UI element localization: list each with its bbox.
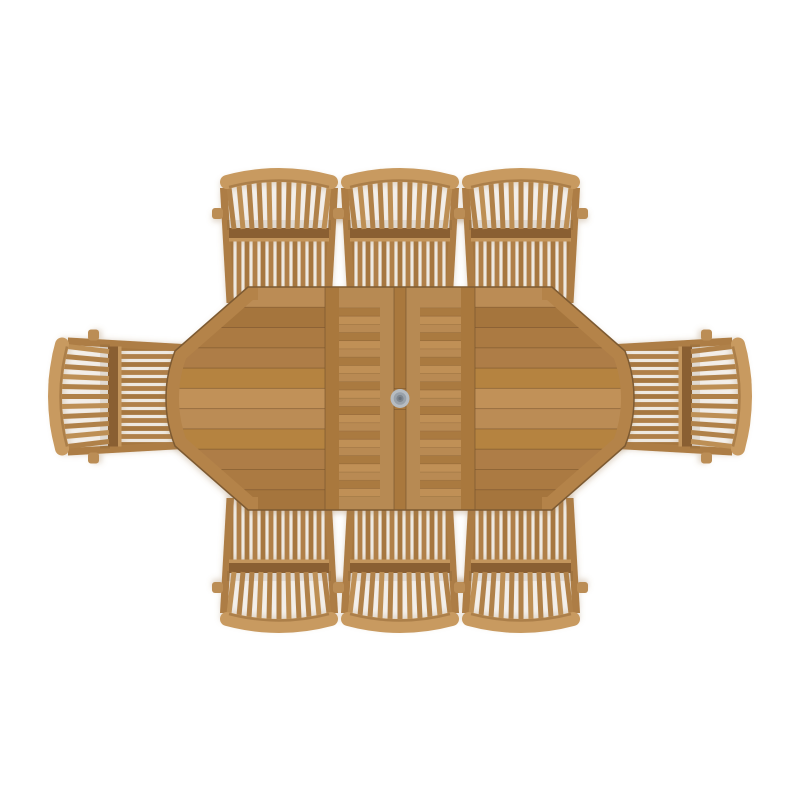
- left-arm-stub: [454, 208, 465, 219]
- left-arm-stub: [333, 208, 344, 219]
- chair-top-right: [454, 175, 588, 303]
- right-arm-stub: [454, 582, 465, 593]
- left-arm-stub: [577, 582, 588, 593]
- left-arm-stub: [88, 453, 99, 464]
- right-arm-stub: [212, 582, 223, 593]
- parasol-hole: [391, 389, 410, 408]
- left-arm-stub: [212, 208, 223, 219]
- right-arm-stub: [577, 208, 588, 219]
- chair-left: [55, 330, 183, 464]
- right-arm-stub: [88, 330, 99, 341]
- chair-bottom-center: [333, 498, 467, 626]
- garden-furniture-product-image: [0, 0, 800, 800]
- left-arm-stub: [701, 330, 712, 341]
- extension-leaf-left: [325, 287, 394, 510]
- extension-leaf-right: [406, 287, 475, 510]
- chair-top-left: [212, 175, 346, 303]
- chair-right: [617, 330, 745, 464]
- right-arm-stub: [333, 582, 344, 593]
- chair-bottom-left: [212, 498, 346, 626]
- scene-svg: [0, 0, 800, 800]
- oval-extending-table: [140, 287, 660, 511]
- right-arm-stub: [701, 453, 712, 464]
- chair-top-center: [333, 175, 467, 303]
- chair-bottom-right: [454, 498, 588, 626]
